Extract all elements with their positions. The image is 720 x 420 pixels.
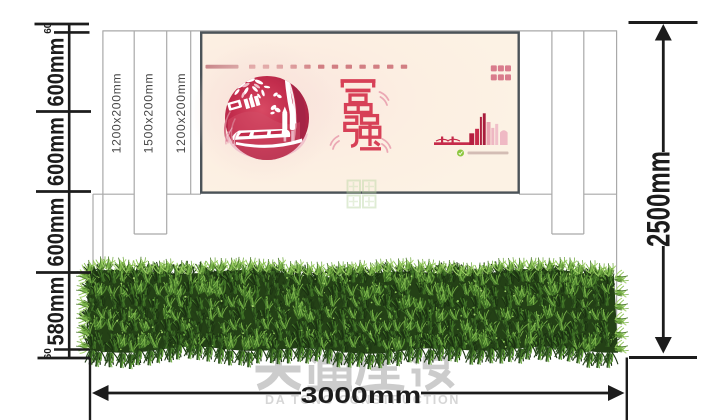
svg-text:1500x200mm: 1500x200mm: [142, 73, 156, 154]
svg-text:60: 60: [43, 22, 54, 34]
svg-text:580mm: 580mm: [42, 277, 69, 346]
svg-text:60: 60: [43, 348, 54, 360]
svg-text:600mm: 600mm: [42, 38, 69, 107]
svg-text:600mm: 600mm: [42, 117, 69, 186]
svg-text:1200x200mm: 1200x200mm: [110, 73, 124, 154]
svg-text:600mm: 600mm: [42, 198, 69, 267]
svg-text:2500mm: 2500mm: [641, 151, 677, 247]
svg-text:1200x200mm: 1200x200mm: [174, 73, 188, 154]
svg-text:3000mm: 3000mm: [301, 382, 422, 408]
